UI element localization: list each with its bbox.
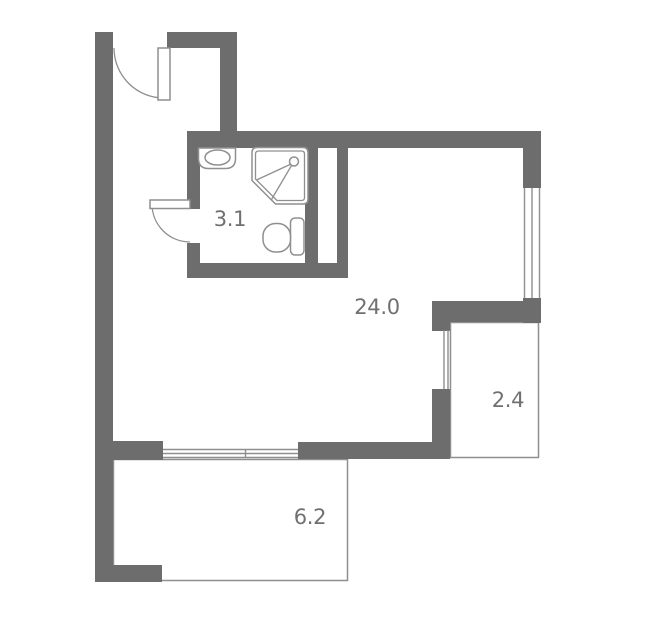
wall-bathroom-left-lower	[187, 243, 200, 263]
wall-balcony-right-stub	[432, 322, 450, 331]
shower-icon	[252, 148, 308, 205]
wall-duct-right	[337, 148, 348, 263]
room-label-balcony-right: 2.4	[492, 388, 525, 412]
wall-entry-top	[167, 32, 237, 48]
sink-icon	[199, 148, 236, 169]
floor-plan-drawing: 3.1 24.0 2.4 6.2	[0, 0, 659, 630]
wall-main-top	[187, 131, 541, 148]
wall-right-upper	[523, 131, 541, 188]
wall-left	[95, 32, 113, 582]
window-bottom	[163, 450, 298, 458]
room-label-main-room: 24.0	[354, 295, 400, 319]
wall-foot-bottom-left	[95, 565, 162, 582]
entrance-door-icon	[114, 48, 170, 100]
room-label-balcony-bottom: 6.2	[294, 505, 327, 529]
wall-bottom-right	[298, 442, 450, 459]
wall-mid-right	[432, 301, 541, 322]
wall-bottom-left	[113, 441, 163, 460]
toilet-icon	[263, 218, 304, 255]
window-right	[523, 188, 541, 298]
floor-plan: 3.1 24.0 2.4 6.2	[0, 0, 659, 630]
bathroom-door-icon	[150, 200, 190, 242]
wall-bathroom-bottom	[187, 263, 348, 278]
room-label-bathroom: 3.1	[214, 207, 247, 231]
window-balcony-right	[444, 330, 448, 389]
